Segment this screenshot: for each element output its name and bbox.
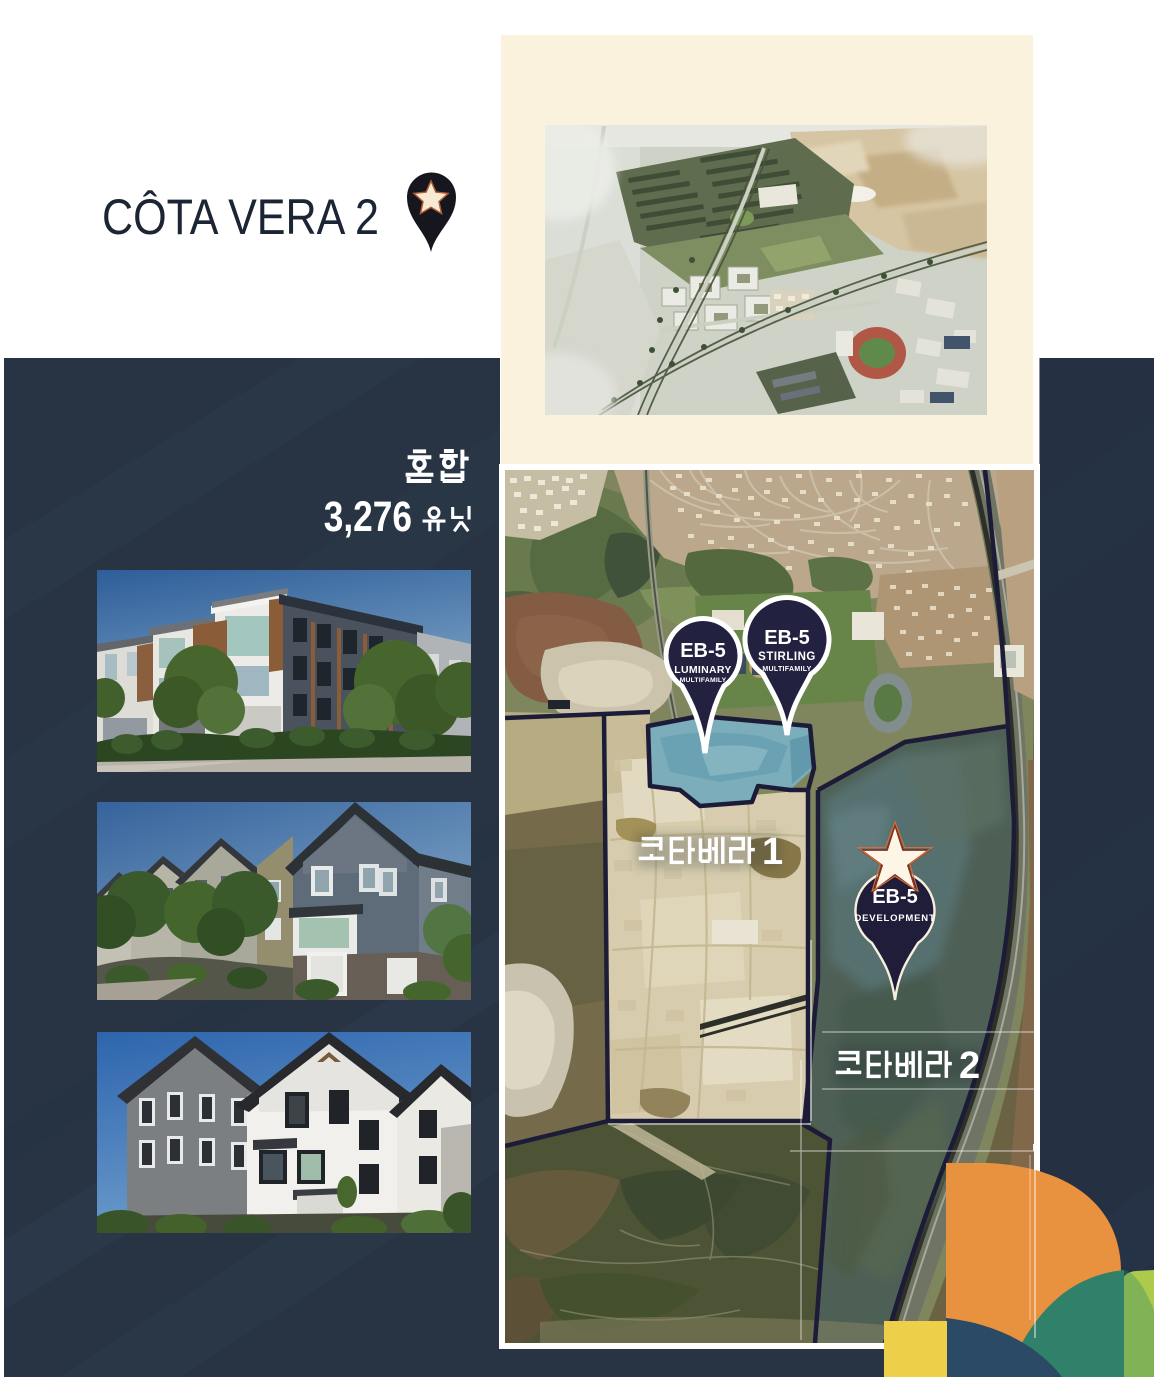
svg-text:STIRLING: STIRLING [758,651,816,663]
svg-text:1: 1 [762,831,783,873]
svg-text:DEVELOPMENT: DEVELOPMENT [854,913,935,924]
svg-text:EB-5: EB-5 [872,886,918,908]
svg-text:EB-5: EB-5 [680,640,726,662]
svg-text:MULTIFAMILY: MULTIFAMILY [762,666,811,673]
svg-text:2: 2 [959,1045,980,1087]
svg-text:3,276: 3,276 [324,493,412,541]
svg-text:EB-5: EB-5 [764,627,810,649]
svg-text:CÔTA VERA 2: CÔTA VERA 2 [102,189,379,245]
svg-text:MULTIFAMILY: MULTIFAMILY [680,677,727,684]
svg-text:LUMINARY: LUMINARY [674,664,731,676]
